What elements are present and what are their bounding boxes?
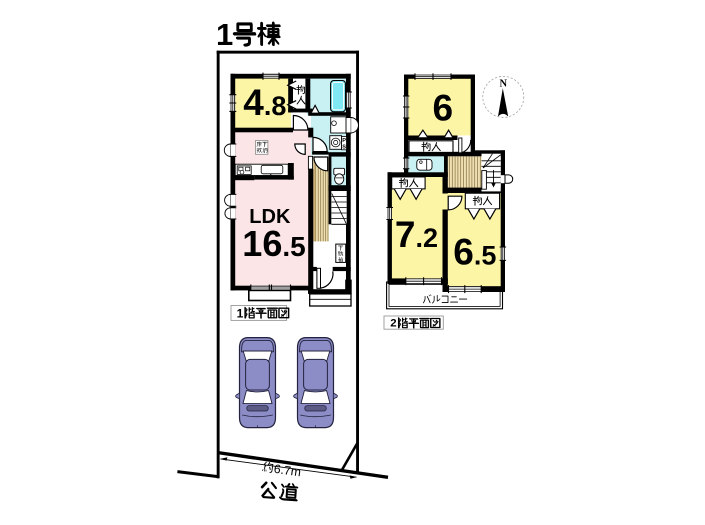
- svg-text:P: P: [342, 138, 346, 144]
- svg-text:N: N: [500, 79, 508, 90]
- svg-text:S: S: [342, 144, 346, 150]
- svg-text:6: 6: [433, 87, 454, 128]
- svg-text:2: 2: [390, 318, 396, 330]
- svg-text:1: 1: [216, 17, 233, 52]
- svg-text:1: 1: [237, 306, 244, 320]
